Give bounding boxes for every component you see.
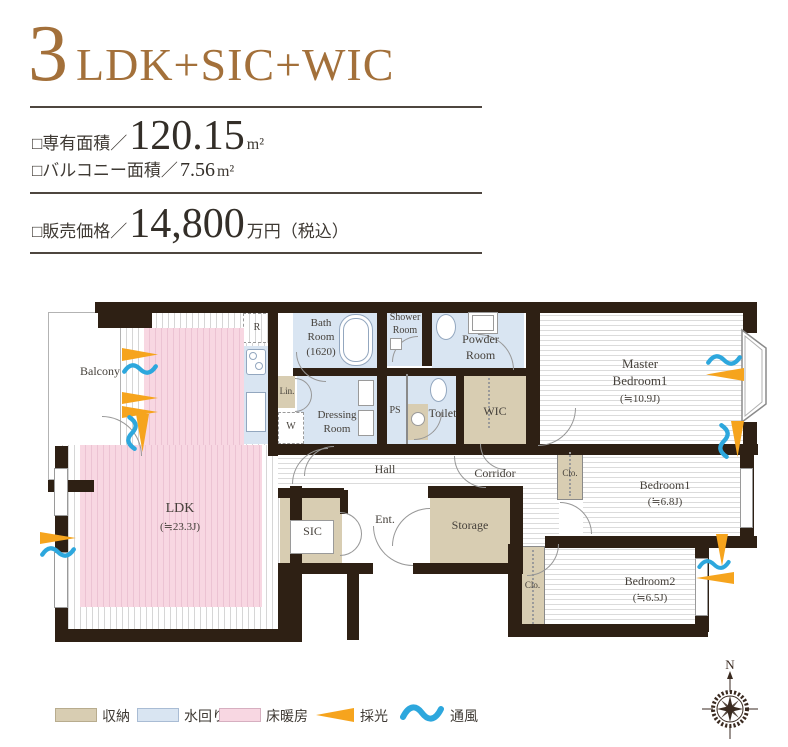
label-text: Clo. (562, 468, 577, 478)
label-text: Bedroom1 (613, 373, 668, 388)
floor-heating-upper (144, 328, 244, 445)
label-text: Storage (452, 518, 489, 532)
wall (413, 563, 510, 574)
label-text: Ent. (375, 512, 395, 526)
label-text: LDK (166, 501, 195, 516)
bay-window (741, 326, 771, 426)
window (54, 552, 68, 608)
label-text: WIC (483, 404, 506, 418)
refrigerator-label: R (243, 321, 271, 334)
label-text: SIC (303, 524, 322, 538)
powder-label: Powder Room (438, 332, 523, 363)
label-text: Balcony (80, 364, 120, 378)
label-text: W (286, 421, 295, 432)
divider-line (30, 106, 482, 108)
dressing-label: Dressing Room (298, 408, 376, 437)
price-unit: 万円（税込） (247, 217, 349, 242)
wall (340, 490, 348, 514)
label-text: Toilet (429, 406, 457, 420)
balcony-label: Balcony (50, 364, 150, 380)
label-text: Powder (462, 332, 499, 346)
size-text: (≒10.9J) (620, 393, 660, 405)
wall (55, 629, 302, 642)
exclusive-area-line: □専有面積／ 120.15 m² (32, 112, 264, 160)
label-text: Room (393, 325, 417, 336)
bedroom2-label: Bedroom2 (≒6.5J) (585, 574, 715, 605)
floorplan: Balcony LDK (≒23.3J) Bath Room (1620) Sh… (40, 296, 780, 660)
wall (278, 563, 292, 640)
legend-storage-swatch (55, 708, 97, 722)
storage-label: Storage (432, 518, 508, 534)
ventilation-wave-icon (125, 415, 139, 451)
size-text: (≒23.3J) (160, 521, 200, 533)
label-text: (1620) (306, 346, 335, 358)
wall (290, 444, 302, 454)
size-text: (≒6.8J) (648, 496, 683, 508)
wall (278, 488, 344, 498)
ventilation-wave-icon (40, 545, 76, 559)
plan-type: LDK+SIC+WIC (76, 42, 394, 88)
label-text: Room (308, 331, 335, 343)
size-text: (≒6.5J) (633, 592, 668, 604)
wic-label: WIC (466, 404, 524, 420)
price-value: 14,800 (129, 200, 245, 248)
wall (278, 444, 758, 455)
dressing-cabinet (358, 380, 374, 406)
balcony-area-label: □バルコニー面積／ (32, 156, 178, 181)
balcony-area-line: □バルコニー面積／ 7.56 m² (32, 156, 234, 182)
legend-ventilation-label: 通風 (450, 706, 478, 726)
bath-label: Bath Room (1620) (293, 316, 349, 359)
hall-label: Hall (360, 462, 410, 478)
label-text: Hall (375, 462, 396, 476)
legend-daylight-icon (316, 708, 354, 722)
price-label: □販売価格／ (32, 217, 127, 242)
plan-number: 3 (28, 14, 68, 94)
label-text: Lin. (280, 386, 295, 396)
label-text: Bedroom2 (625, 574, 676, 588)
label-text: Bedroom1 (640, 478, 691, 492)
master-bedroom-label: Master Bedroom1 (≒10.9J) (560, 356, 720, 407)
label-text: Shower (390, 312, 421, 323)
toilet-icon (430, 378, 447, 402)
compass: N (702, 658, 758, 744)
toilet-label: Toilet (420, 406, 465, 422)
shower-head-icon (390, 338, 402, 350)
area-label: □専有面積／ (32, 129, 127, 154)
ventilation-wave-icon (717, 423, 731, 459)
balcony-area-value: 7.56 (180, 159, 215, 182)
label-text: R (254, 322, 261, 333)
sic-label: SIC (285, 524, 340, 540)
wic-dotted-line (488, 378, 491, 428)
legend-ventilation-icon (400, 702, 444, 724)
burner-icon (249, 352, 257, 360)
label-text: Corridor (474, 466, 515, 480)
legend-daylight-label: 採光 (360, 706, 388, 726)
ventilation-wave-icon (696, 558, 732, 571)
legend-heating-label: 床暖房 (266, 706, 308, 726)
floorplan-flyer: { "header": { "number": "3", "suffix": "… (0, 0, 788, 747)
closet1-label: Clo. (557, 468, 583, 480)
wall (98, 302, 152, 328)
legend-storage-label: 収納 (102, 706, 130, 726)
shower-label: Shower Room (380, 311, 430, 337)
wall (428, 486, 523, 498)
balcony-area-unit: m² (217, 163, 234, 181)
label-text: Room (466, 348, 495, 362)
ps-label: PS (382, 404, 408, 417)
ldk-label: LDK (≒23.3J) (120, 500, 240, 536)
burner-icon (255, 362, 263, 370)
area-unit: m² (247, 136, 264, 154)
legend-water-swatch (137, 708, 179, 722)
wall (278, 563, 373, 574)
mirror-cabinet-inner (472, 315, 494, 331)
compass-rose-icon (702, 671, 758, 741)
bedroom1-label: Bedroom1 (≒6.8J) (600, 478, 730, 509)
price-line: □販売価格／ 14,800 万円（税込） (32, 200, 349, 248)
window (740, 468, 753, 528)
label-text: Master (622, 356, 658, 371)
divider-line (30, 252, 482, 254)
label-text: Bath (311, 317, 332, 329)
label-text: PS (389, 405, 400, 416)
legend-heating-swatch (219, 708, 261, 722)
wall (508, 624, 708, 637)
entrance-label: Ent. (360, 512, 410, 528)
closet2-label: Clo. (520, 580, 545, 592)
divider-line (30, 192, 482, 194)
wall (347, 574, 359, 640)
linen-label: Lin. (276, 386, 298, 398)
compass-north-label: N (702, 658, 758, 671)
window (54, 468, 68, 516)
corridor-label: Corridor (455, 466, 535, 482)
plan-title: 3 LDK+SIC+WIC (28, 14, 394, 94)
kitchen-sink-icon (246, 392, 266, 432)
label-text: Clo. (525, 580, 540, 590)
washer-label: W (278, 420, 304, 433)
area-value: 120.15 (129, 112, 245, 160)
label-text: Room (324, 423, 351, 435)
label-text: Dressing (317, 409, 356, 421)
